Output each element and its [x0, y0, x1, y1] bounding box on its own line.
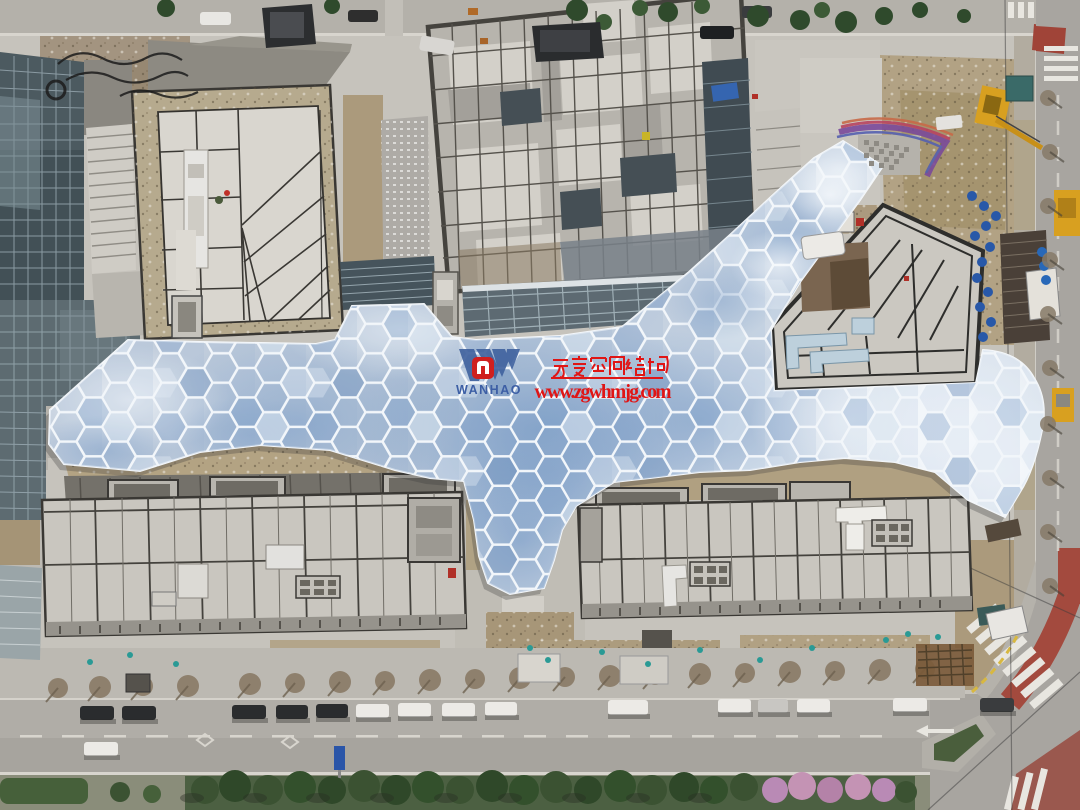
svg-text:WANHAO: WANHAO	[456, 383, 522, 397]
svg-text:www.zgwhmjg.com: www.zgwhmjg.com	[535, 382, 672, 403]
